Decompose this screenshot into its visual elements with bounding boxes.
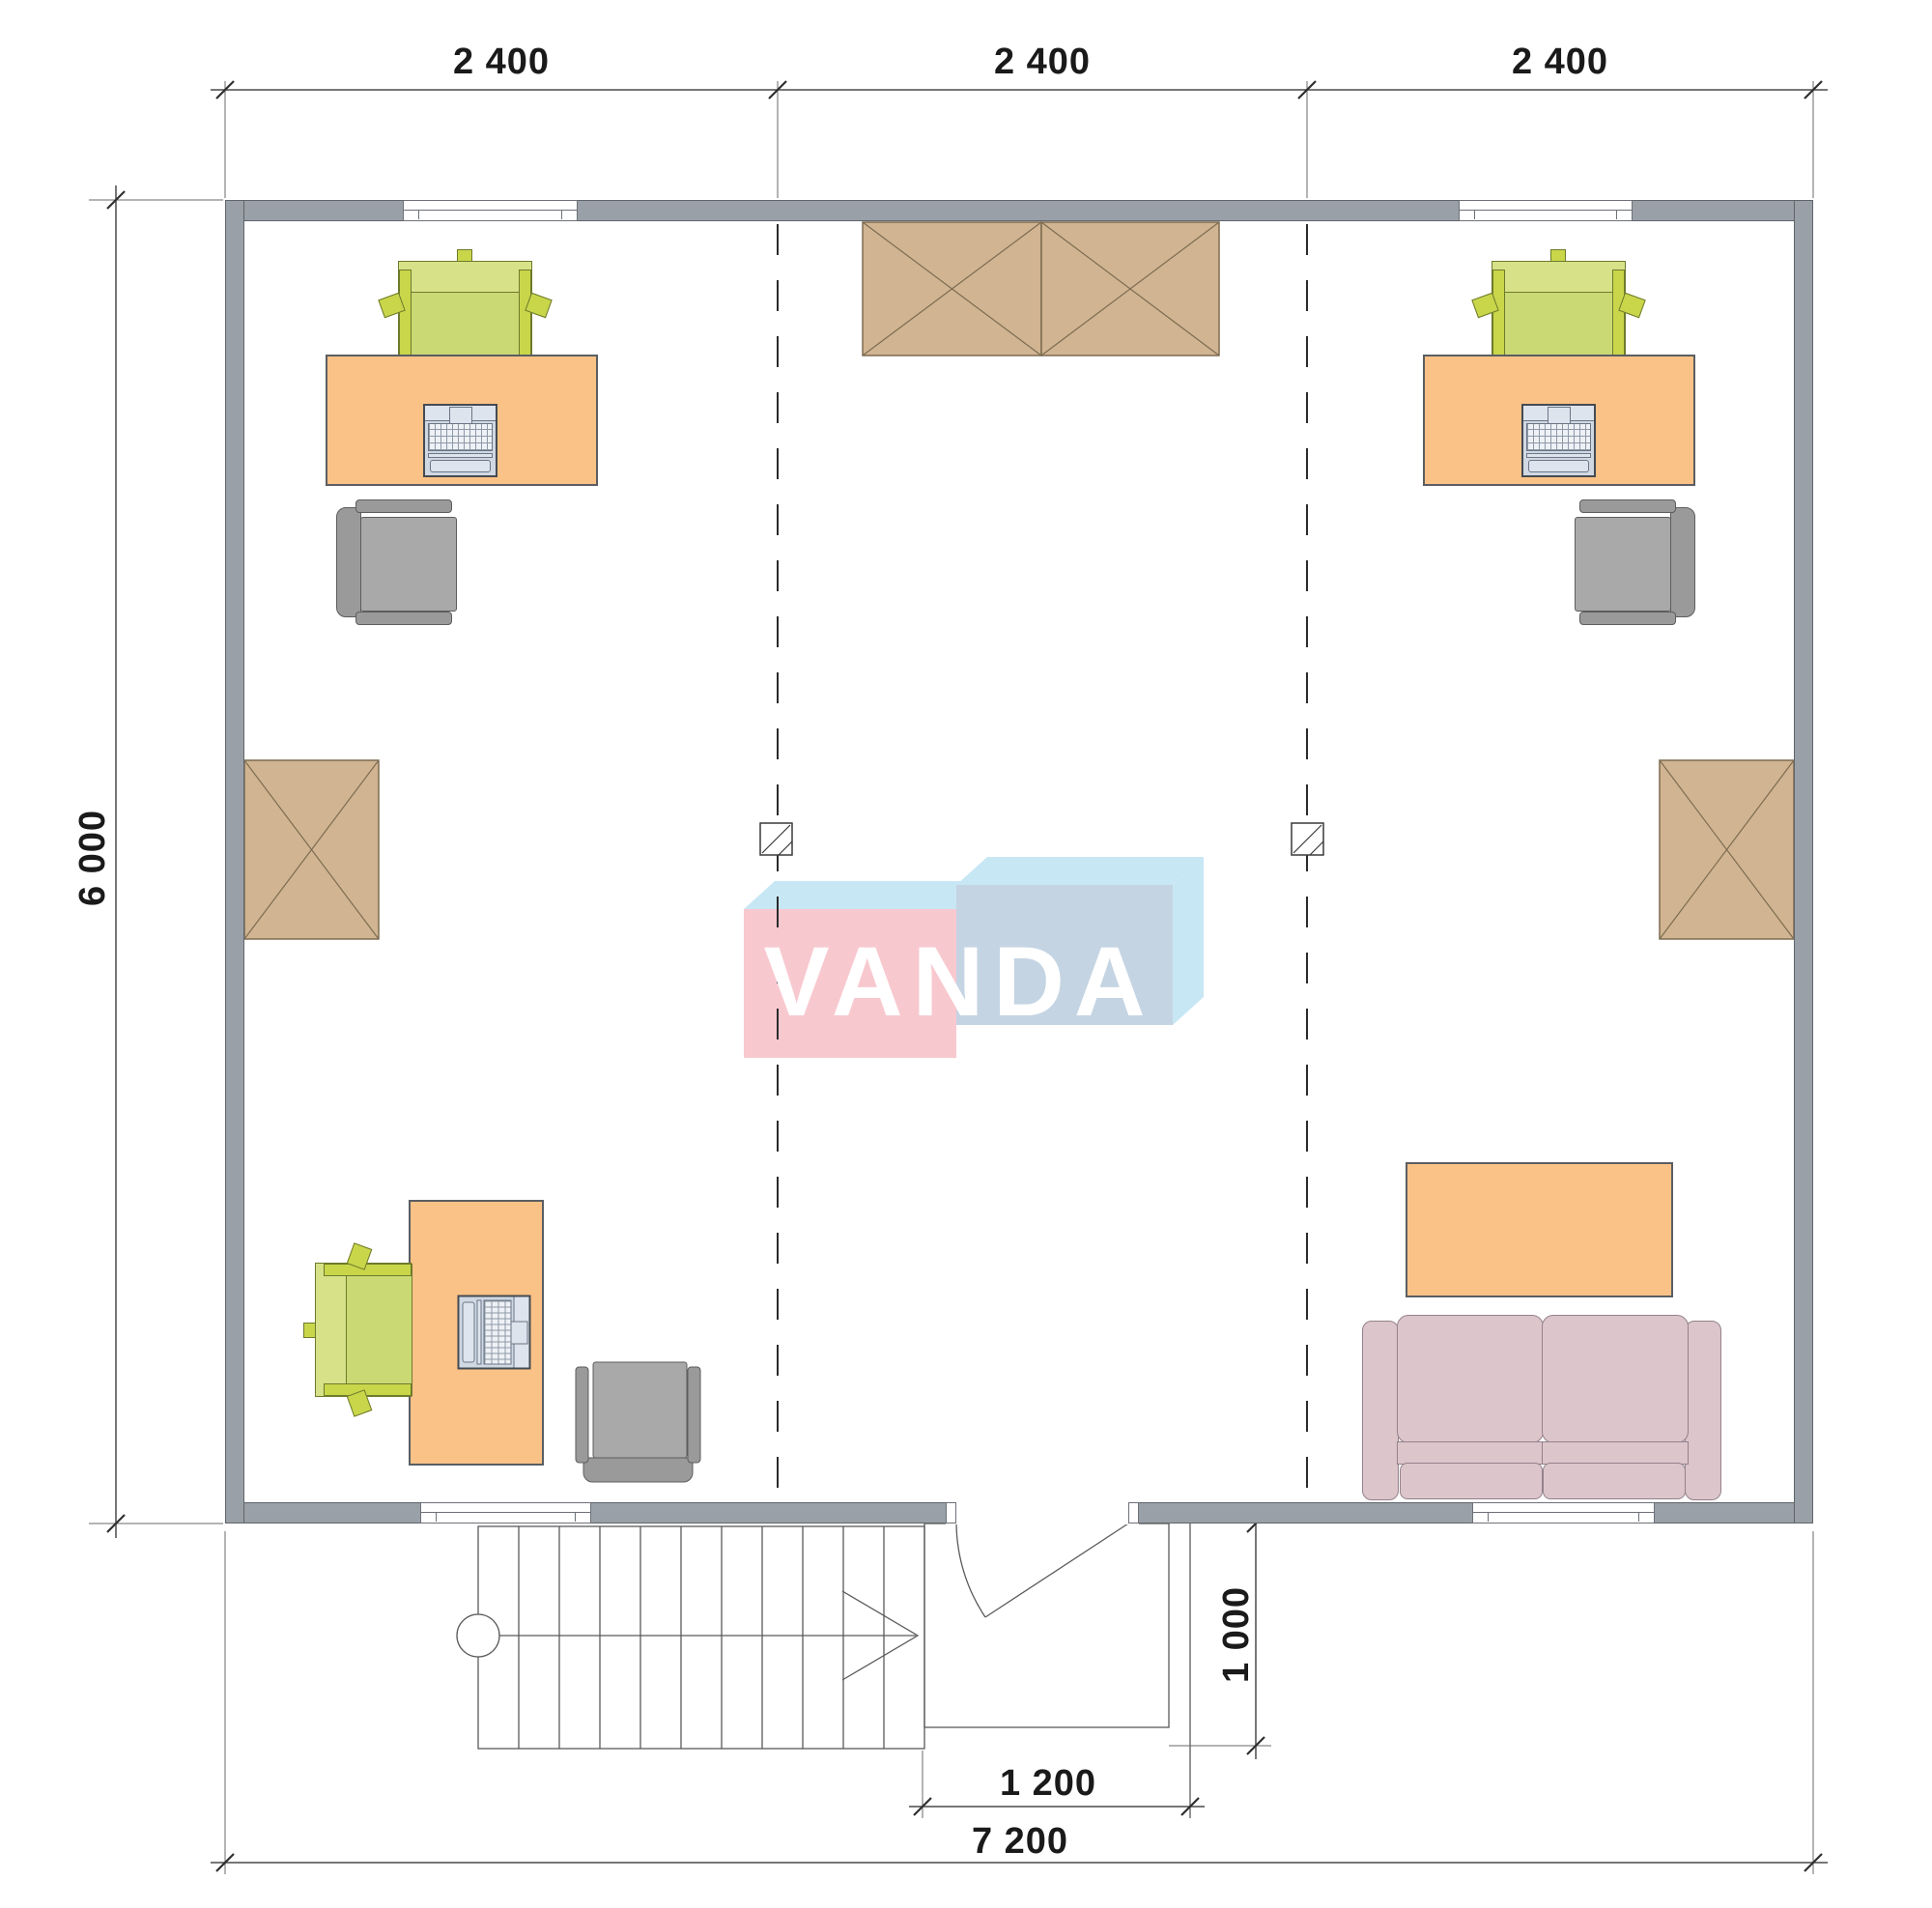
laptop-top-right [1521, 404, 1596, 477]
cabinet-top-left-unit [863, 222, 1041, 356]
sofa-seat-cushion [1400, 1463, 1543, 1499]
chair-backrest [398, 261, 532, 293]
task-chair-gray-top-left [336, 499, 457, 625]
staircase [457, 1526, 924, 1749]
wall-left [225, 200, 244, 1524]
laptop-keyboard [428, 423, 493, 451]
door-jamb-left [946, 1502, 956, 1524]
door-jamb-right [1128, 1502, 1139, 1524]
sofa-armrest-right [1685, 1321, 1721, 1500]
dim-label-top-bay-2: 2 400 [994, 43, 1091, 80]
dim-label-top-bay-1: 2 400 [453, 43, 550, 80]
door-leaf [985, 1524, 1128, 1617]
laptop-keyboard [1526, 423, 1591, 451]
coffee-table [1406, 1162, 1673, 1297]
window-top-right [1459, 200, 1633, 221]
cabinet-left-wall [244, 760, 379, 939]
office-chair-green-top-left [398, 249, 532, 358]
entry-door-swing [956, 1524, 1128, 1617]
laptop-bottom-left [458, 1296, 531, 1370]
window-frame-line [1460, 210, 1632, 211]
column-symbol-left [760, 823, 792, 855]
dim-label-width: 7 200 [972, 1823, 1068, 1860]
chair-backrest [583, 1458, 694, 1483]
door-opening [946, 1501, 1139, 1524]
sofa-armrest-left [1362, 1321, 1399, 1500]
window-frame-line [1473, 1512, 1654, 1513]
chair-backrest [336, 507, 361, 617]
chair-backrest [1492, 261, 1626, 293]
cabinet-top-right-unit [1041, 222, 1219, 356]
laptop-keyboard [484, 1300, 512, 1365]
dim-label-height: 6 000 [74, 810, 111, 906]
office-chair-green-bottom-left [303, 1263, 412, 1397]
task-chair-gray-top-right [1575, 499, 1695, 625]
floor-plan: VANDA 2 400 2 400 2 400 6 000 7 200 1 20… [0, 0, 1932, 1908]
laptop-screen [1528, 460, 1589, 472]
cabinet-right-wall [1660, 760, 1794, 939]
window-bottom-right [1472, 1502, 1655, 1524]
dim-label-entry-width: 1 200 [1000, 1765, 1096, 1802]
dim-label-top-bay-3: 2 400 [1512, 43, 1608, 80]
wall-right [1794, 200, 1813, 1524]
office-chair-green-top-right [1492, 249, 1626, 358]
chair-backrest [1670, 507, 1695, 617]
laptop-screen [430, 460, 491, 472]
window-frame-line [404, 210, 577, 211]
watermark-logo-text: VANDA [763, 932, 1154, 1031]
window-bottom-left [420, 1502, 591, 1524]
sofa [1362, 1315, 1721, 1504]
chair-backrest [315, 1263, 347, 1397]
task-chair-gray-bottom-left [576, 1362, 701, 1483]
sofa-back-cushion [1542, 1315, 1689, 1443]
window-frame-line [421, 1512, 590, 1513]
dim-label-porch-depth: 1 000 [1218, 1586, 1255, 1683]
column-symbol-right [1292, 823, 1323, 855]
sofa-back-cushion [1397, 1315, 1544, 1443]
window-top-left [403, 200, 578, 221]
sofa-seat-cushion [1543, 1463, 1686, 1499]
stair-start-post [457, 1614, 499, 1657]
laptop-top-left [423, 404, 497, 477]
laptop-screen [463, 1302, 475, 1363]
